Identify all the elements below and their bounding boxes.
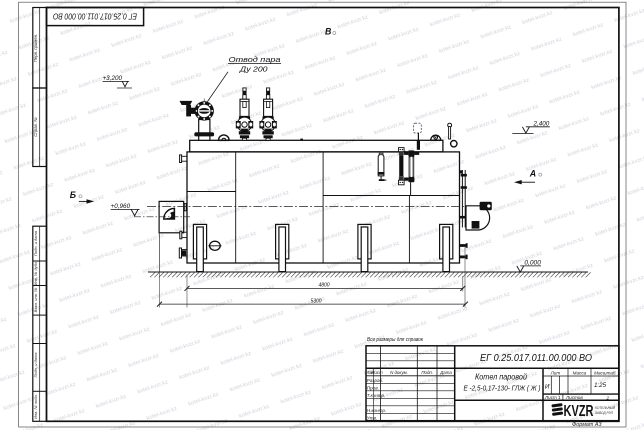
svg-text:И: И <box>545 384 550 391</box>
svg-text:Лит: Лит <box>550 370 561 375</box>
svg-text:1:25: 1:25 <box>594 382 607 389</box>
svg-text:Н.контр.: Н.контр. <box>367 408 386 413</box>
svg-text:ЗАВОД РЭП: ЗАВОД РЭП <box>595 410 613 415</box>
svg-text:Лист 1: Лист 1 <box>544 395 561 400</box>
svg-text:Масштаб: Масштаб <box>594 370 616 375</box>
svg-text:4800: 4800 <box>318 283 329 289</box>
svg-text:N докум.: N докум. <box>390 370 408 375</box>
svg-text:Дата: Дата <box>439 370 452 375</box>
svg-text:Перв. примен.: Перв. примен. <box>33 34 38 63</box>
svg-text:Справ. №: Справ. № <box>33 117 38 137</box>
svg-text:Подп.: Подп. <box>421 370 433 375</box>
svg-text:Подп. и дата: Подп. и дата <box>33 352 38 378</box>
svg-text:Все размеры для справок: Все размеры для справок <box>367 337 423 343</box>
svg-text:2: 2 <box>606 395 610 400</box>
svg-text:А: А <box>529 168 536 178</box>
svg-text:ЕГ 0.25.017.011.00.000 ВО: ЕГ 0.25.017.011.00.000 ВО <box>53 11 137 21</box>
svg-text:ЕГ 0.25.017.011.00.000 ВО: ЕГ 0.25.017.011.00.000 ВО <box>480 353 592 364</box>
svg-text:Утв.: Утв. <box>367 415 377 420</box>
svg-text:5300: 5300 <box>310 298 321 304</box>
svg-text:Отвод пара: Отвод пара <box>229 55 281 64</box>
svg-text:Разраб.: Разраб. <box>367 378 384 383</box>
svg-text:Т.контр.: Т.контр. <box>367 393 386 398</box>
svg-text:Масса: Масса <box>573 370 587 375</box>
svg-text:Инв. № дубл.: Инв. № дубл. <box>33 261 38 286</box>
svg-text:Листов: Листов <box>565 395 583 400</box>
svg-text:Формат А3: Формат А3 <box>572 422 602 428</box>
svg-text:KVZR: KVZR <box>564 403 594 420</box>
svg-text:Инв. № подл.: Инв. № подл. <box>33 394 38 419</box>
svg-text:Взам. инв. №: Взам. инв. № <box>33 287 38 312</box>
svg-text:Ду 200: Ду 200 <box>239 64 268 73</box>
svg-text:Котел паровой: Котел паровой <box>475 373 527 382</box>
svg-text:Пров.: Пров. <box>367 385 379 390</box>
svg-text:Лист: Лист <box>370 370 383 375</box>
svg-text:В: В <box>325 27 332 37</box>
svg-text:Подп. и дата: Подп. и дата <box>33 230 38 256</box>
svg-text:Е -2,5-0,17-130- ГЛЖ ( Ж ): Е -2,5-0,17-130- ГЛЖ ( Ж ) <box>464 385 541 392</box>
svg-text:Б: Б <box>70 190 76 200</box>
